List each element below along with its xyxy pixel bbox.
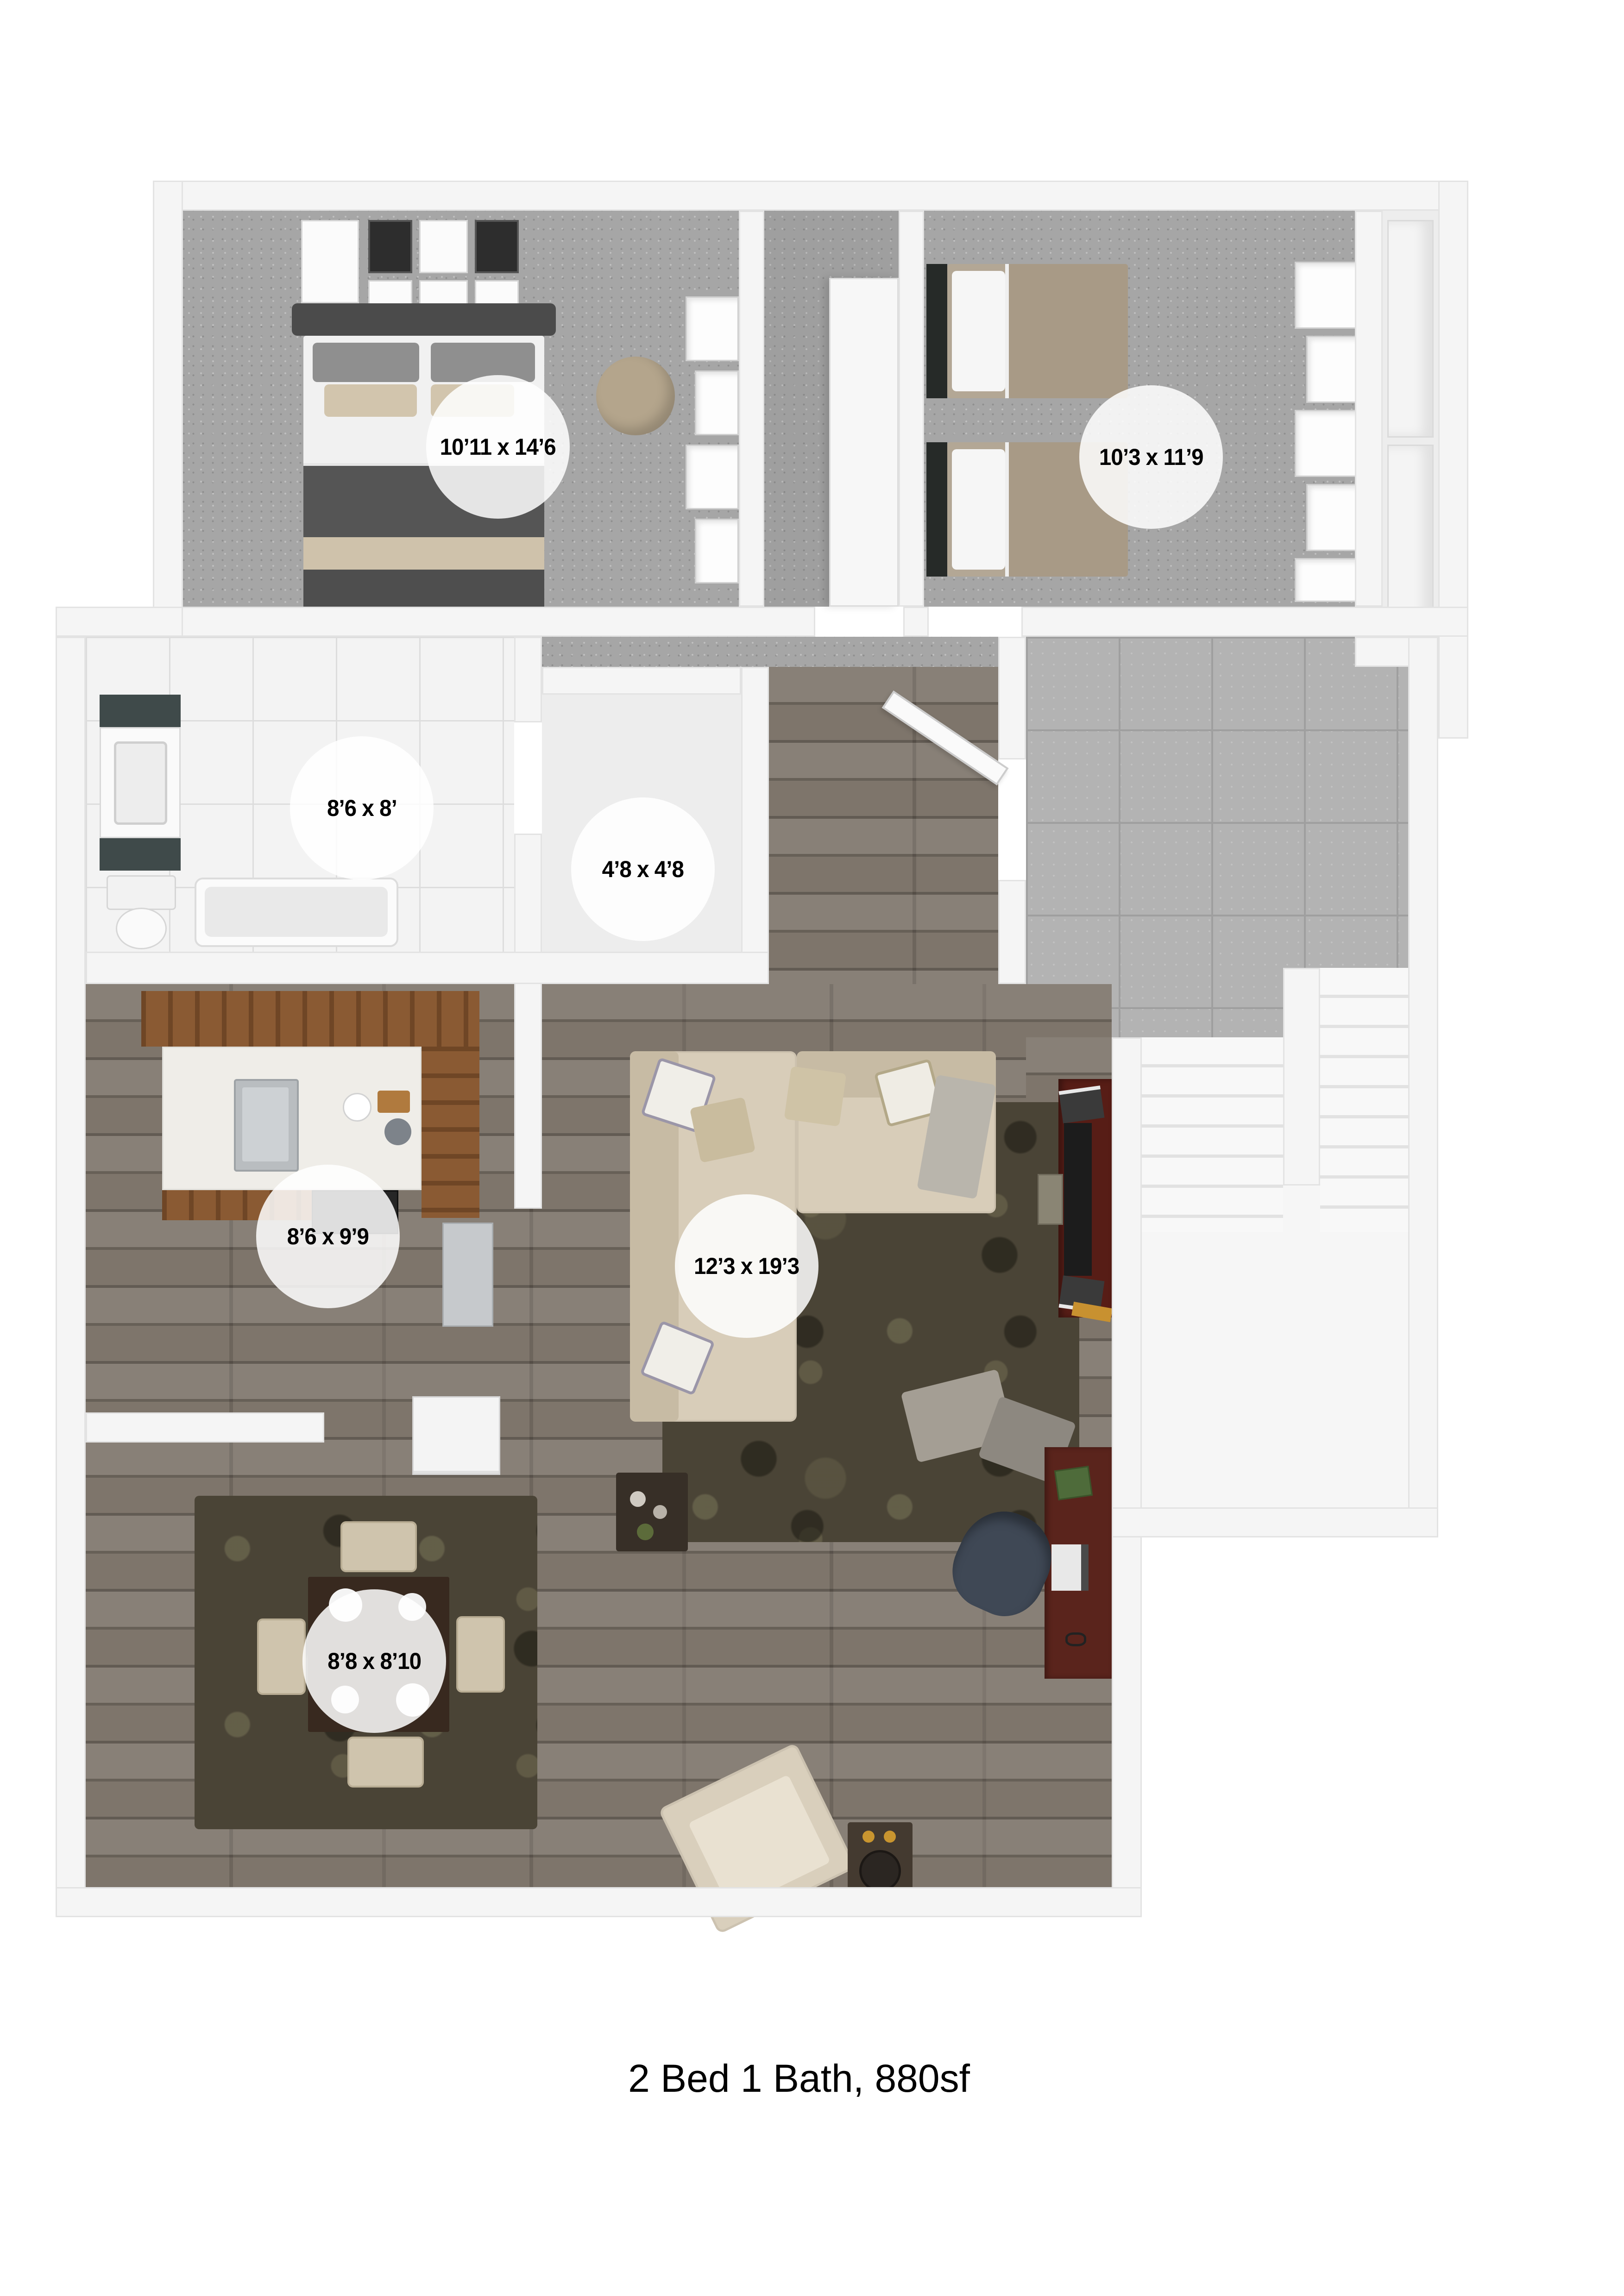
bedroom2-shelf-1 xyxy=(1295,262,1357,329)
vanity-counter-top xyxy=(100,695,181,727)
bed-blanket-fold xyxy=(303,537,544,570)
bed-pillow-beige-left xyxy=(324,384,417,417)
wall-living-right xyxy=(1112,1037,1142,1917)
bedroom2-shelf-4 xyxy=(1306,484,1357,551)
wall-left-lower xyxy=(56,637,86,1917)
desk-glasses xyxy=(1065,1632,1086,1646)
wall-hall-right-b xyxy=(998,880,1026,984)
twin-bed2-pillow xyxy=(952,449,1005,570)
sofa-pillow-beige-2 xyxy=(784,1066,847,1127)
bedroom2-shelf-2 xyxy=(1306,336,1357,403)
speaker-knob-1 xyxy=(862,1831,875,1843)
wall-stair-right xyxy=(1408,637,1438,1537)
stair-divider-wall xyxy=(1283,968,1320,1186)
speaker-cone xyxy=(859,1850,901,1892)
twin-bed2-headboard xyxy=(926,442,947,577)
twin-bed1-blanket xyxy=(1005,264,1128,398)
wall-bedroom2-wardrobe xyxy=(1355,211,1383,607)
dishwasher xyxy=(442,1223,493,1327)
wall-dining-stub xyxy=(86,1412,324,1443)
bed-headboard xyxy=(292,303,556,336)
wall-right-upper xyxy=(1438,181,1468,739)
closet-dimension-label: 4’8 x 4’8 xyxy=(571,797,715,941)
wall-bedroom1-closet xyxy=(739,211,764,607)
sliding-closet-panel-1 xyxy=(1387,220,1434,438)
kitchen-sink xyxy=(234,1079,299,1172)
counter-cutting-board xyxy=(378,1091,410,1113)
wall-left-step xyxy=(56,607,183,637)
bedroom2-shelf-3 xyxy=(1295,410,1357,477)
bedroom1-shelf-2 xyxy=(695,370,739,435)
side-table-plant xyxy=(637,1524,654,1540)
twin-bed1-headboard xyxy=(926,264,947,398)
toilet-bowl xyxy=(116,908,167,949)
wall-closet-bedroom2 xyxy=(899,211,924,607)
desk-book xyxy=(1054,1466,1093,1500)
bedroom1-shelf-3 xyxy=(686,445,739,509)
bedroom1-dimension-text: 10’11 x 14’6 xyxy=(440,433,556,460)
dining-chair-top xyxy=(340,1521,417,1572)
bedroom2-shelf-5 xyxy=(1295,558,1357,602)
bedroom2-dimension-label: 10’3 x 11’9 xyxy=(1079,385,1223,529)
side-table-cup-2 xyxy=(653,1505,667,1519)
wall-top-outer xyxy=(153,181,1468,211)
tv-console xyxy=(1058,1079,1112,1317)
wall-bedband-a xyxy=(153,607,815,637)
television xyxy=(1064,1123,1092,1276)
wall-closet-right xyxy=(741,667,769,984)
sofa-pillow-beige-1 xyxy=(690,1097,755,1163)
vanity-sink xyxy=(100,727,181,838)
tall-wardrobe xyxy=(829,278,899,607)
dining-area-dimension-text: 8’8 x 8’10 xyxy=(327,1648,421,1675)
hallway-carpet xyxy=(542,637,998,667)
desk xyxy=(1045,1447,1112,1679)
stair-flight-left xyxy=(1142,1037,1283,1232)
living-room-dimension-label: 12’3 x 19’3 xyxy=(675,1194,818,1338)
wall-bath-right-b xyxy=(514,834,542,1209)
bathtub xyxy=(195,878,398,947)
bedroom2-dimension-text: 10’3 x 11’9 xyxy=(1099,444,1203,470)
bed-pillow-gray-left xyxy=(313,343,419,382)
wall-closet-top xyxy=(542,667,741,695)
art-frame-dark-3 xyxy=(475,220,519,273)
twin-bed1-pillow xyxy=(952,271,1005,391)
closet-dimension-text: 4’8 x 4’8 xyxy=(602,856,684,883)
speaker-knob-2 xyxy=(884,1831,896,1843)
sink-basin xyxy=(114,741,167,825)
side-table xyxy=(616,1473,688,1551)
counter-bowl xyxy=(343,1093,371,1122)
floor-plan-page: 10’11 x 14’6 10’3 x 11’9 8’6 x 8’ 4’8 x … xyxy=(0,0,1624,2296)
toilet-tank xyxy=(107,875,176,910)
art-frame-dark-1 xyxy=(368,220,412,273)
dining-area-dimension-label: 8’8 x 8’10 xyxy=(302,1589,446,1733)
wall-bath-kitchen xyxy=(86,952,769,984)
bathroom-dimension-label: 8’6 x 8’ xyxy=(290,736,434,880)
wall-bedband-b xyxy=(903,607,929,637)
bean-bag xyxy=(596,357,675,435)
entry-hall-floor xyxy=(769,667,998,984)
art-frame-large xyxy=(301,220,359,303)
bed-blanket-foot xyxy=(303,570,544,607)
wall-left-upper xyxy=(153,181,183,637)
vanity-counter-bottom xyxy=(100,838,181,871)
wall-bath-right-a xyxy=(514,637,542,722)
kitchen-right-cabinets xyxy=(422,1047,479,1218)
art-frame-2 xyxy=(419,220,468,273)
dining-chair-right xyxy=(456,1616,505,1693)
wall-wardrobe-cap xyxy=(1355,637,1410,667)
bathtub-basin xyxy=(205,887,388,937)
tv-shelf-item xyxy=(1038,1174,1063,1225)
wall-stair-bottom xyxy=(1112,1507,1438,1537)
laptop xyxy=(1051,1544,1089,1591)
dining-chair-bottom xyxy=(347,1737,424,1788)
sink-inner xyxy=(242,1087,289,1161)
side-table-cup-1 xyxy=(630,1491,646,1507)
kitchen-dimension-label: 8’6 x 9’9 xyxy=(256,1165,400,1308)
bedroom1-shelf-4 xyxy=(695,519,739,583)
bathroom-dimension-text: 8’6 x 8’ xyxy=(327,795,397,822)
living-room-dimension-text: 12’3 x 19’3 xyxy=(694,1253,799,1280)
bedroom1-shelf-1 xyxy=(686,296,739,361)
tv-speaker-top xyxy=(1059,1085,1105,1123)
stair-flight-right xyxy=(1320,968,1408,1232)
wall-bottom-outer xyxy=(56,1887,1142,1917)
kitchen-dimension-text: 8’6 x 9’9 xyxy=(287,1223,369,1250)
floor-plan-3d-render: 10’11 x 14’6 10’3 x 11’9 8’6 x 8’ 4’8 x … xyxy=(0,0,1624,2296)
twin-bed1 xyxy=(947,264,1128,398)
bedroom1-dimension-label: 10’11 x 14’6 xyxy=(426,375,570,519)
dining-chair-left xyxy=(257,1618,306,1695)
kitchen-upper-cabinets xyxy=(141,991,479,1047)
wall-hall-right-a xyxy=(998,637,1026,759)
plan-caption: 2 Bed 1 Bath, 880sf xyxy=(0,2056,1598,2101)
refrigerator xyxy=(412,1396,500,1475)
wall-bedband-c xyxy=(1021,607,1468,637)
counter-pot xyxy=(384,1118,411,1145)
